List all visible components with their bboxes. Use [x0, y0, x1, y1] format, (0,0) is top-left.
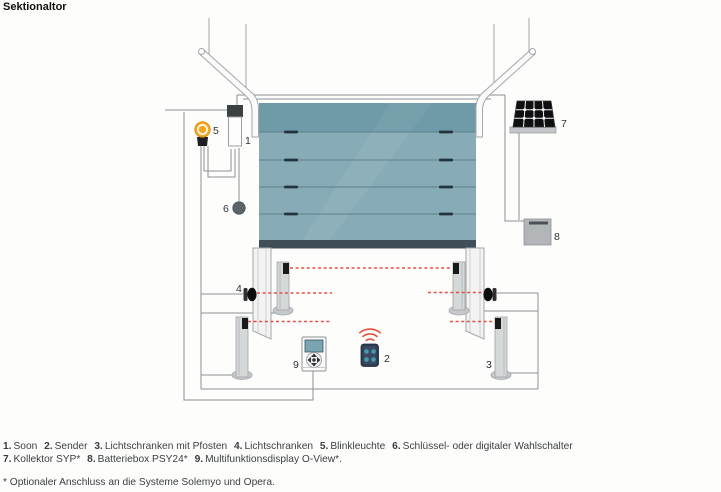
caption-line-2: 7.Kollektor SYP* 8.Batteriebox PSY24* 9.… — [3, 453, 715, 466]
ceiling-suspension-lines — [209, 18, 529, 88]
caption-line-1: 1.Soon 2.Sender 3.Lichtschranken mit Pfo… — [3, 440, 715, 453]
left-rail-end-cap — [199, 49, 205, 55]
label-4: 4 — [236, 283, 242, 295]
label-8: 8 — [554, 231, 560, 243]
oview-display — [302, 337, 326, 371]
battery-box-slot — [529, 222, 548, 225]
sectional-door — [259, 103, 476, 249]
caption-item-label: Kollektor SYP* — [14, 454, 81, 465]
caption-item-num: 1. — [3, 441, 12, 452]
photocell-post-left-outer — [232, 317, 252, 380]
photocell-eye — [242, 318, 248, 329]
drive-head — [227, 105, 243, 117]
oview-screen — [305, 340, 323, 352]
caption-item-num: 7. — [3, 454, 12, 465]
label-9: 9 — [293, 359, 299, 371]
right-vertical-track — [466, 248, 484, 339]
remote-sender — [360, 329, 380, 366]
caption-item-num: 2. — [44, 441, 53, 452]
label-1: 1 — [245, 135, 251, 147]
caption-item-label: Lichtschranken — [245, 441, 314, 452]
photocell-eye — [495, 318, 501, 329]
label-3: 3 — [486, 359, 492, 371]
caption-item-label: Soon — [14, 441, 38, 452]
flashing-light-base — [197, 137, 208, 146]
figure-caption: 1.Soon 2.Sender 3.Lichtschranken mit Pfo… — [3, 440, 715, 489]
label-5: 5 — [213, 125, 219, 137]
key-switch — [233, 202, 245, 214]
label-2: 2 — [384, 353, 390, 365]
caption-item-num: 3. — [94, 441, 103, 452]
label-7: 7 — [561, 118, 567, 130]
caption-item-label: Schlüssel- oder digitaler Wahlschalter — [403, 441, 573, 452]
caption-item-label: Batteriebox PSY24* — [98, 454, 188, 465]
photocell-right — [483, 288, 496, 302]
photocell-eye — [283, 263, 289, 274]
solar-collector-base — [510, 127, 556, 133]
caption-item-num: 5. — [320, 441, 329, 452]
caption-item-num: 8. — [87, 454, 96, 465]
right-rail-end-cap — [530, 49, 536, 55]
caption-footnote: * Optionaler Anschluss an die Systeme So… — [3, 476, 715, 489]
caption-item-label: Sender — [55, 441, 88, 452]
caption-item-num: 9. — [195, 454, 204, 465]
photocell-left — [244, 288, 257, 302]
label-6: 6 — [223, 203, 229, 215]
photocell-post-right-outer — [491, 317, 511, 380]
flashing-light — [195, 122, 211, 146]
door-top-panel — [259, 103, 476, 132]
manual-page: Sektionaltor — [0, 0, 721, 492]
caption-item-label: Multifunktionsdisplay O-View*. — [205, 454, 342, 465]
caption-item-num: 4. — [234, 441, 243, 452]
radio-waves-icon — [360, 329, 380, 340]
sectional-door-diagram: 1 2 3 4 5 6 7 8 9 — [0, 0, 721, 492]
caption-item-label: Blinkleuchte — [330, 441, 385, 452]
photocell-post-left-inner — [273, 262, 293, 315]
door-bottom-bar — [259, 240, 476, 249]
photocell-eye — [453, 263, 459, 274]
caption-item-label: Lichtschranken mit Pfosten — [105, 441, 227, 452]
soon-drive-unit — [227, 105, 243, 146]
drive-body — [229, 117, 242, 146]
battery-box — [524, 219, 551, 245]
caption-item-num: 6. — [392, 441, 401, 452]
solar-collector — [510, 101, 556, 133]
